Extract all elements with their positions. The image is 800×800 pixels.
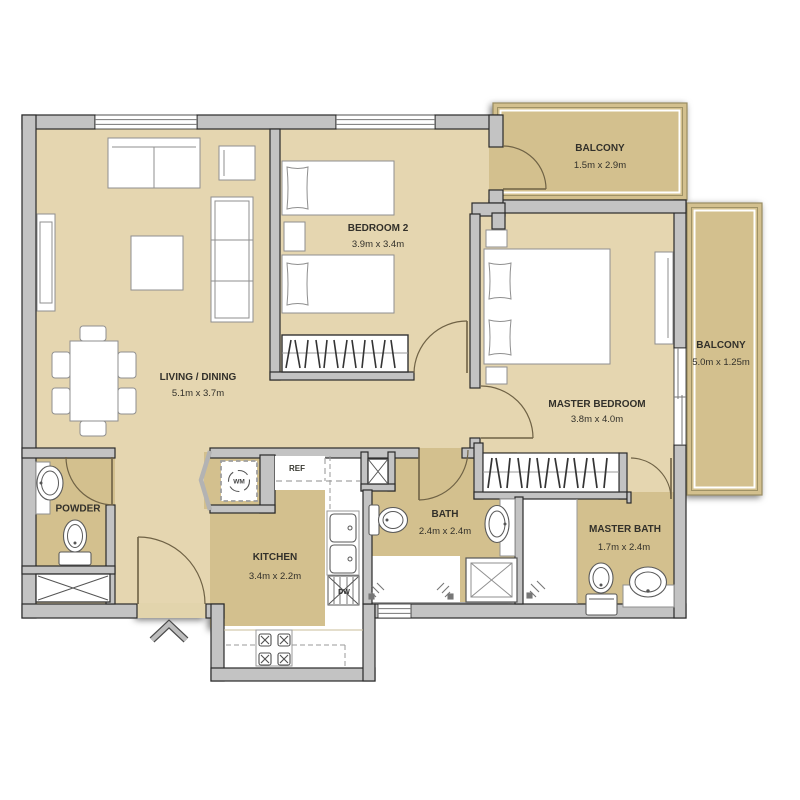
svg-text:BATH: BATH — [431, 509, 458, 520]
svg-text:3.4m x 2.2m: 3.4m x 2.2m — [249, 571, 301, 582]
svg-text:BALCONY: BALCONY — [575, 143, 625, 154]
svg-text:WM: WM — [233, 479, 245, 486]
svg-text:1.7m x 2.4m: 1.7m x 2.4m — [598, 542, 650, 553]
svg-text:5.0m x 1.25m: 5.0m x 1.25m — [692, 357, 750, 368]
svg-text:BEDROOM 2: BEDROOM 2 — [348, 223, 409, 234]
svg-text:LIVING / DINING: LIVING / DINING — [160, 372, 237, 383]
svg-text:REF: REF — [289, 464, 305, 473]
svg-text:POWDER: POWDER — [56, 504, 102, 515]
svg-text:DW: DW — [338, 589, 350, 596]
svg-text:KITCHEN: KITCHEN — [253, 552, 297, 563]
svg-text:3.9m x 3.4m: 3.9m x 3.4m — [352, 239, 404, 250]
svg-text:BALCONY: BALCONY — [696, 340, 746, 351]
svg-text:2.4m x 2.4m: 2.4m x 2.4m — [419, 526, 471, 537]
svg-text:MASTER BEDROOM: MASTER BEDROOM — [548, 399, 645, 410]
svg-text:3.8m x 4.0m: 3.8m x 4.0m — [571, 414, 623, 425]
svg-text:1.5m x 2.9m: 1.5m x 2.9m — [574, 160, 626, 171]
svg-text:5.1m x 3.7m: 5.1m x 3.7m — [172, 388, 224, 399]
svg-text:MASTER BATH: MASTER BATH — [589, 524, 661, 535]
